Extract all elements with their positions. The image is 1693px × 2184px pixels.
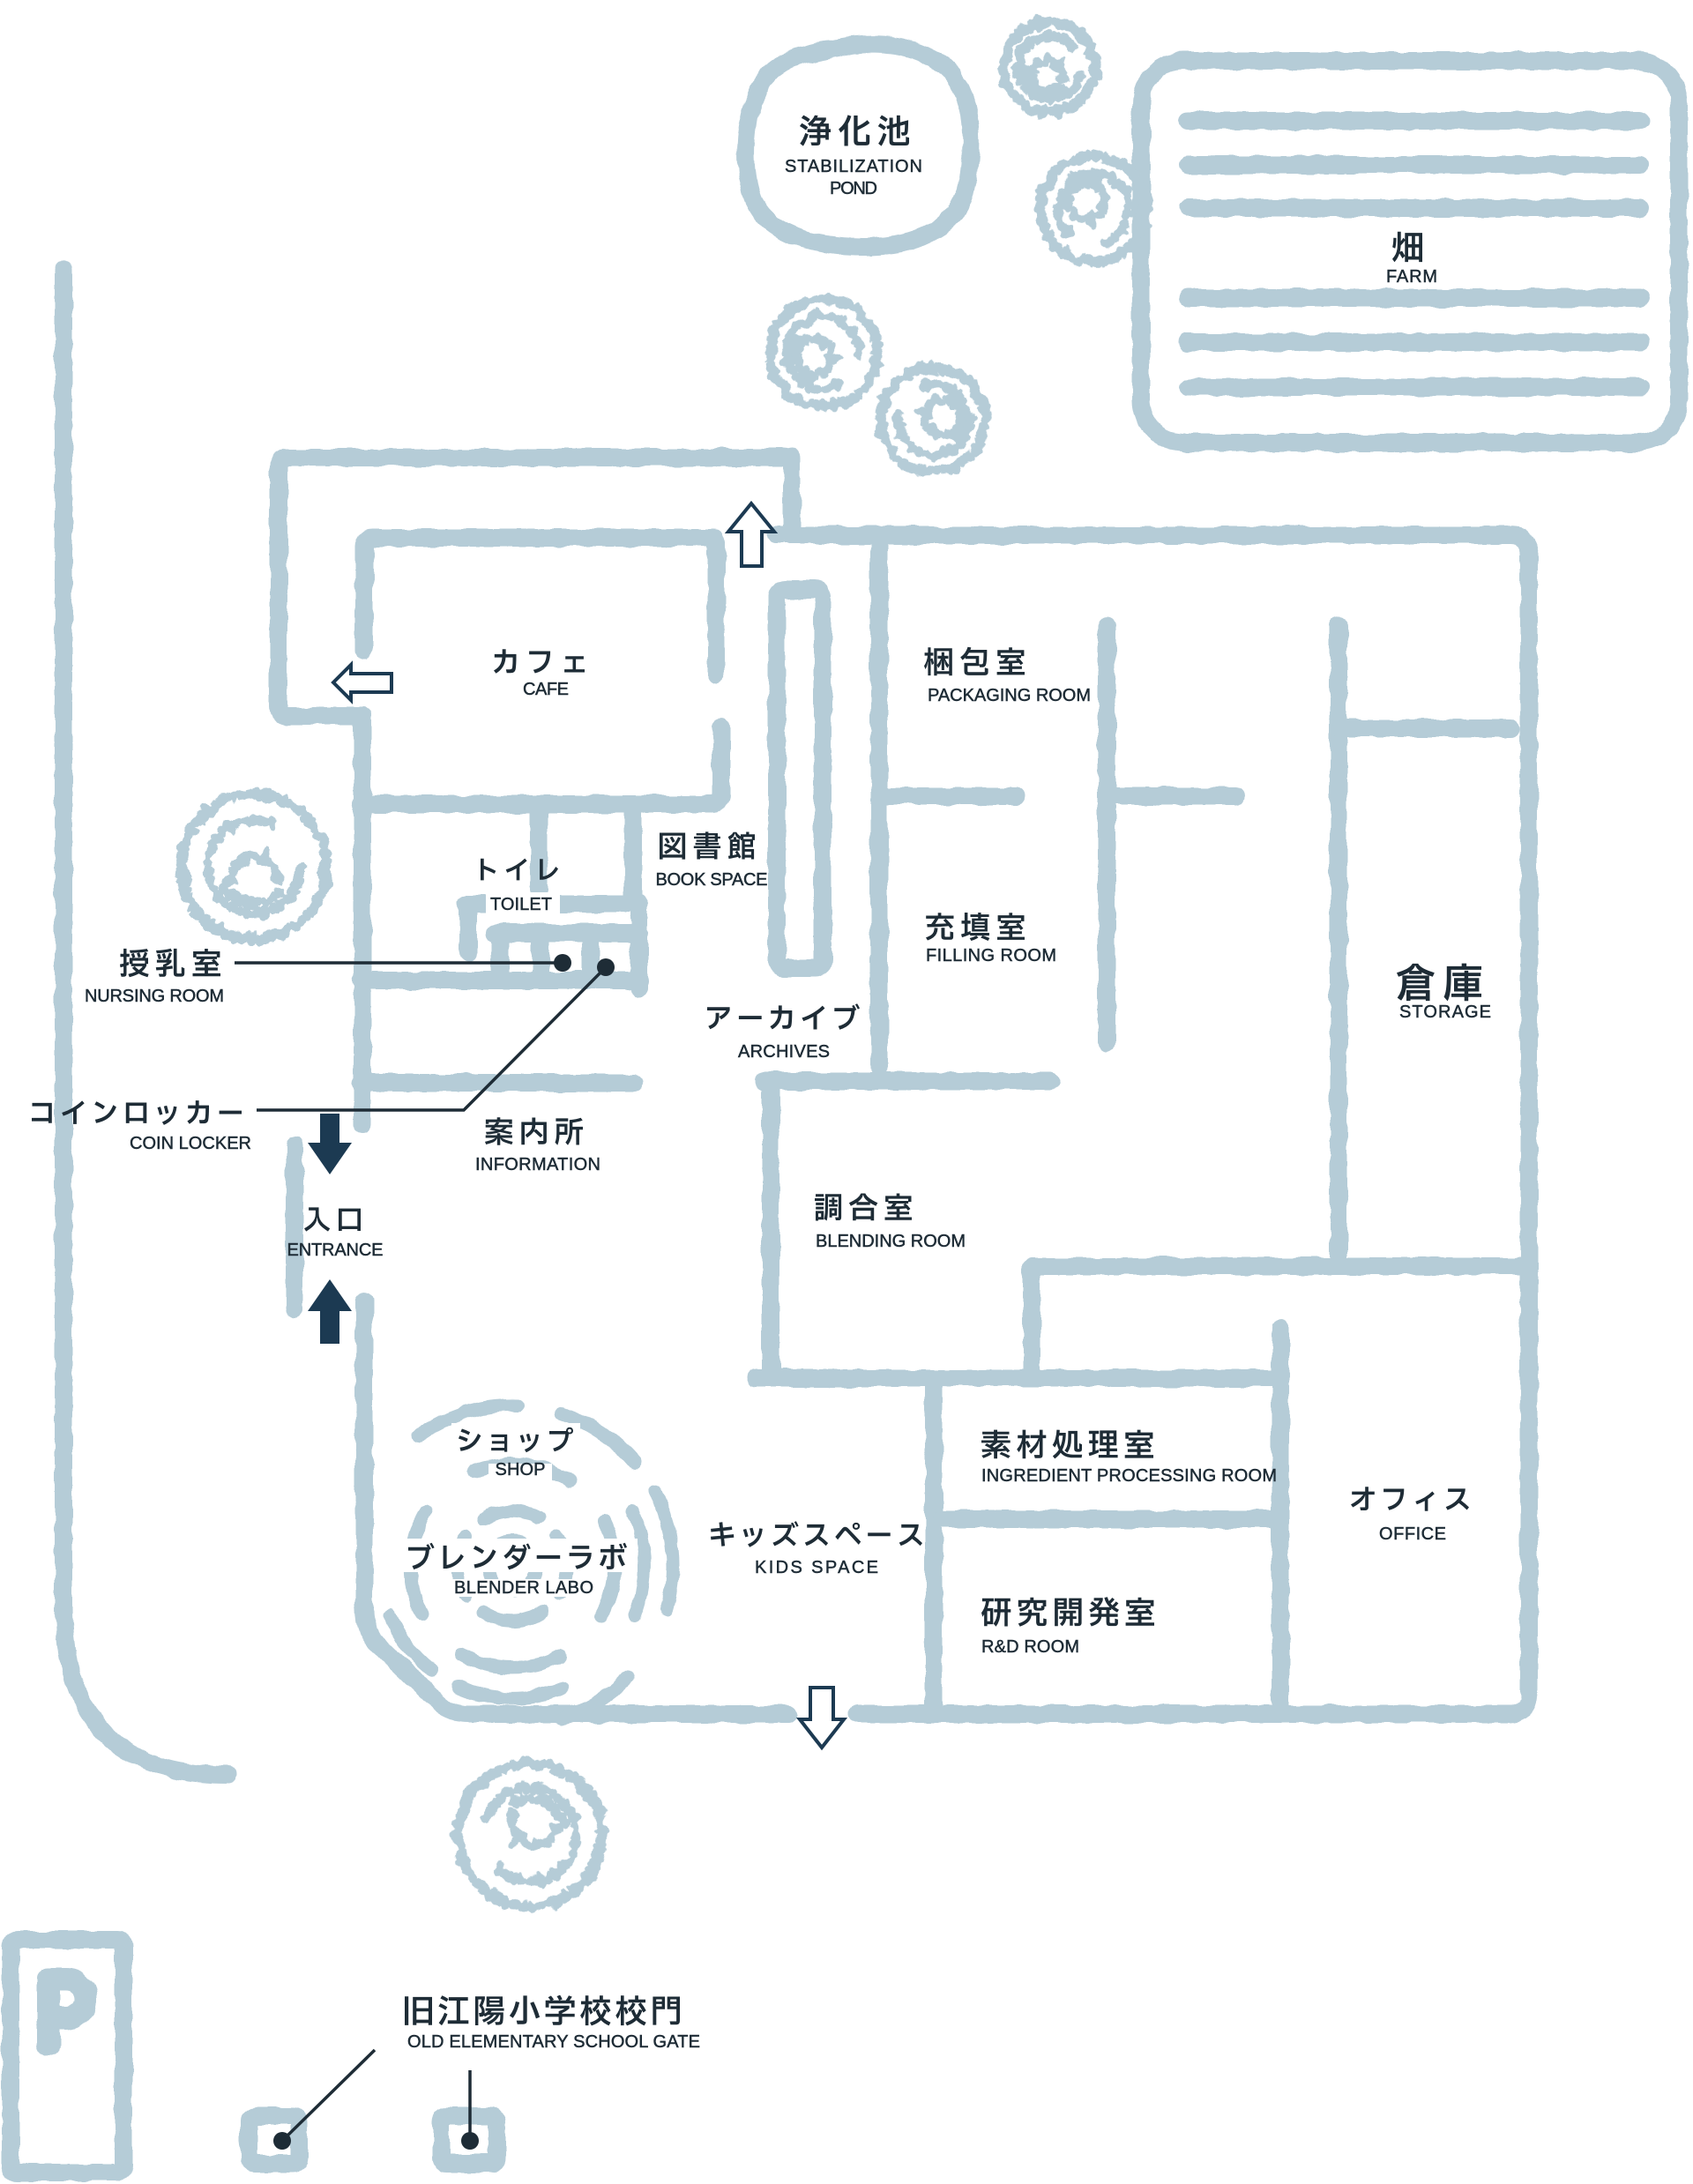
svg-text:STABILIZATION: STABILIZATION — [785, 157, 922, 176]
svg-text:OFFICE: OFFICE — [1379, 1524, 1446, 1544]
svg-text:FILLING ROOM: FILLING ROOM — [926, 946, 1056, 965]
svg-text:ENTRANCE: ENTRANCE — [287, 1241, 384, 1260]
svg-text:BLENDING ROOM: BLENDING ROOM — [816, 1232, 966, 1251]
svg-text:R&D ROOM: R&D ROOM — [981, 1637, 1079, 1657]
svg-text:OLD ELEMENTARY SCHOOL GATE: OLD ELEMENTARY SCHOOL GATE — [407, 2032, 700, 2052]
svg-text:NURSING ROOM: NURSING ROOM — [85, 987, 224, 1006]
svg-text:BOOK SPACE: BOOK SPACE — [656, 870, 768, 890]
svg-text:COIN LOCKER: COIN LOCKER — [130, 1134, 251, 1153]
svg-text:TOILET: TOILET — [490, 895, 552, 914]
svg-text:ARCHIVES: ARCHIVES — [738, 1042, 830, 1062]
svg-text:FARM: FARM — [1386, 267, 1437, 287]
svg-text:POND: POND — [830, 179, 877, 198]
svg-text:SHOP: SHOP — [496, 1460, 546, 1480]
svg-text:KIDS SPACE: KIDS SPACE — [755, 1558, 878, 1577]
svg-text:INFORMATION: INFORMATION — [475, 1155, 600, 1174]
svg-text:PACKAGING ROOM: PACKAGING ROOM — [928, 686, 1091, 705]
svg-text:BLENDER LABO: BLENDER LABO — [454, 1578, 593, 1598]
svg-text:INGREDIENT PROCESSING ROOM: INGREDIENT PROCESSING ROOM — [981, 1466, 1277, 1486]
svg-text:STORAGE: STORAGE — [1399, 1003, 1491, 1022]
svg-text:CAFE: CAFE — [523, 680, 569, 699]
